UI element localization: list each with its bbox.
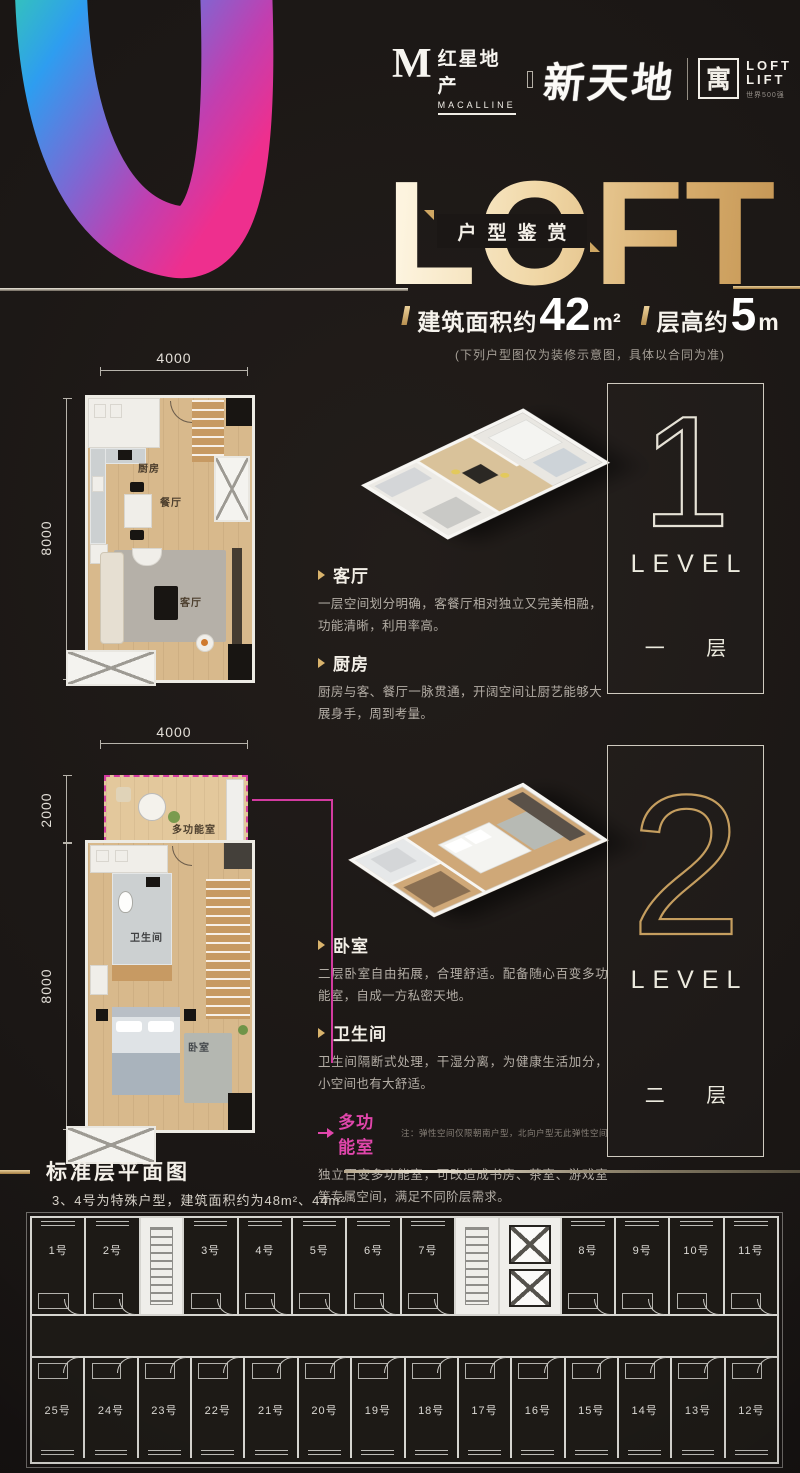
unit-label: 19号: [352, 1402, 403, 1418]
window-mark: [625, 1221, 659, 1226]
pillow: [116, 1021, 142, 1032]
section-kitchen: 厨房 厨房与客、餐厅一脉贯通，开阔空间让厨艺能够大展身手，周到考量。: [318, 650, 602, 725]
window-mark: [571, 1221, 605, 1226]
unit-cell: 18号: [404, 1358, 457, 1458]
nightstand: [96, 1009, 108, 1021]
room-label: 卫生间: [130, 929, 163, 944]
sink: [92, 476, 104, 492]
section-multiroom: 多功能室 注：弹性空间仅限朝南户型，北向户型无此弹性空间 独立百变多功能室，可改…: [318, 1108, 608, 1208]
kitchen-counter: [90, 448, 106, 544]
toilet: [118, 891, 133, 913]
door-arc: [757, 1299, 773, 1315]
level2-number-graphic: 2: [631, 766, 741, 966]
unit-cell: 15号: [564, 1358, 617, 1458]
door-arc: [63, 1357, 79, 1373]
door-arc: [648, 1299, 664, 1315]
unit-cell: 9号: [614, 1218, 668, 1314]
unit-label: 20号: [299, 1402, 350, 1418]
coffee-table: [154, 586, 178, 620]
unit-label: 13号: [672, 1402, 723, 1418]
level2-badge: 2 LEVEL 二 层: [607, 745, 764, 1157]
floor-word: 二 层: [627, 1079, 745, 1108]
level1-copy: 客厅 一层空间划分明确，客餐厅相对独立又完美相融，功能清晰，利用率高。 厨房 厨…: [318, 562, 602, 738]
area-label: 建筑面积约: [417, 303, 537, 337]
unit-label: 6号: [347, 1242, 399, 1258]
door-arc: [703, 1299, 719, 1315]
height-value: 5: [731, 294, 757, 335]
unit-cell: 3号: [182, 1218, 236, 1314]
window-mark: [308, 1450, 341, 1455]
window-mark: [248, 1221, 282, 1226]
plan1-dim-left-label: 8000: [38, 516, 54, 560]
unit-label: 23号: [139, 1402, 190, 1418]
window-mark: [361, 1450, 394, 1455]
closet-hatch: [214, 456, 250, 522]
room-label: 客厅: [180, 594, 202, 609]
door-arc: [117, 1357, 133, 1373]
window-mark: [96, 1221, 130, 1226]
brand-swoosh-graphic: [0, 0, 280, 300]
plan2-dim-top-line: [100, 743, 248, 744]
unit-cell: 5号: [291, 1218, 345, 1314]
blanket: [112, 1053, 180, 1095]
window-mark: [680, 1221, 714, 1226]
door-arc: [384, 1357, 400, 1373]
poster-canvas: M 红星地产 MACALLINE 新天地 寓 LOFT LIFT 世界500强 …: [0, 0, 800, 1473]
door-arc: [172, 846, 192, 866]
standard-floor-plan: 1号 2号 3号 4号: [30, 1216, 779, 1464]
window-mark: [357, 1221, 391, 1226]
section-marker-icon: [318, 1028, 325, 1038]
armchair: [116, 787, 131, 802]
unit-cell: 19号: [350, 1358, 403, 1458]
door-arc: [650, 1357, 666, 1373]
elevator-icon: [509, 1225, 551, 1264]
level1-number-graphic: 1: [646, 400, 726, 550]
door-arc: [330, 1357, 346, 1373]
unit-label: 22号: [192, 1402, 243, 1418]
unit-cell: 20号: [297, 1358, 350, 1458]
unit-label: 9号: [616, 1242, 668, 1258]
multiroom-zone: 多功能室: [104, 775, 248, 843]
core-elev: [498, 1218, 560, 1314]
washer: [115, 850, 128, 862]
unit-label: 2号: [86, 1242, 138, 1258]
plan2-dim-2000-label: 2000: [38, 788, 54, 832]
sink: [96, 850, 109, 862]
unit-label: 21号: [245, 1402, 296, 1418]
dining-chair: [130, 530, 144, 540]
seal-icon: [527, 71, 533, 88]
entry-door-arc: [170, 401, 192, 423]
cabinet: [226, 779, 244, 841]
unit-label: 11号: [725, 1242, 777, 1258]
floor-word: 一 层: [627, 632, 745, 661]
window-mark: [411, 1221, 445, 1226]
boyu-tagline: 世界500强: [746, 92, 792, 100]
height-unit: m: [758, 309, 778, 336]
section-bathroom: 卫生间 卫生间隔断式处理，干湿分离，为健康生活加分，小空间也有大舒适。: [318, 1020, 608, 1095]
door-arc: [437, 1357, 453, 1373]
door-arc: [170, 1357, 186, 1373]
section-living: 客厅 一层空间划分明确，客餐厅相对独立又完美相融，功能清晰，利用率高。: [318, 562, 602, 637]
macalline-text: 红星地产 MACALLINE: [438, 44, 516, 115]
render-3d-level1: [358, 382, 606, 562]
appliance-block: [94, 404, 106, 418]
door-arc: [223, 1357, 239, 1373]
unit-cell: 14号: [617, 1358, 670, 1458]
window-mark: [468, 1450, 501, 1455]
window-mark: [521, 1450, 554, 1455]
plan1-bottom-balcony: [66, 650, 156, 686]
door-arc: [704, 1357, 720, 1373]
room-label: 厨房: [138, 460, 160, 475]
door-arc: [217, 1299, 233, 1315]
iso-floor-level2: [348, 783, 608, 918]
window-mark: [201, 1450, 234, 1455]
door-arc: [597, 1357, 613, 1373]
window-mark: [415, 1450, 448, 1455]
unit-label: 24号: [85, 1402, 136, 1418]
room-label: 餐厅: [160, 494, 182, 509]
unit-cell: 21号: [243, 1358, 296, 1458]
unit-label: 5号: [293, 1242, 345, 1258]
sofa: [100, 552, 124, 644]
door-arc: [277, 1357, 293, 1373]
pillow: [148, 1021, 174, 1032]
unit-label: 17号: [459, 1402, 510, 1418]
gold-tick-icon: [641, 306, 650, 325]
hero-band: 户型鉴赏: [437, 214, 587, 248]
door-arc: [594, 1299, 610, 1315]
door-arc: [64, 1299, 80, 1315]
title-tick-left: [0, 1170, 30, 1174]
unit-cell: 12号: [724, 1358, 777, 1458]
xintiandi-script-logo: 新天地: [541, 49, 679, 109]
window-mark: [194, 1221, 228, 1226]
boyu-loft-logo: 寓 LOFT LIFT 世界500强: [698, 58, 792, 100]
shaft-block: [226, 398, 252, 426]
door-arc: [757, 1357, 773, 1373]
section-marker-icon: [318, 570, 325, 580]
door-arc: [325, 1299, 341, 1315]
unit-label: 7号: [402, 1242, 454, 1258]
door-arc: [490, 1357, 506, 1373]
area-value: 42: [539, 294, 590, 335]
bathroom: [112, 873, 172, 965]
cabinet: [90, 965, 108, 995]
unit-label: 14号: [619, 1402, 670, 1418]
level1-badge: 1 LEVEL 一 层: [607, 383, 764, 694]
unit-label: 15号: [566, 1402, 617, 1418]
stairs: [192, 400, 224, 462]
room-label: 卧室: [188, 1039, 210, 1054]
plan1-dim-top-label: 4000: [100, 350, 248, 366]
door-arc: [380, 1299, 396, 1315]
unit-cell: 13号: [670, 1358, 723, 1458]
window-mark: [735, 1450, 768, 1455]
window-mark: [148, 1450, 181, 1455]
unit-label: 10号: [670, 1242, 722, 1258]
hero-specs: 建筑面积约 42 m² 层高约 5 m: [388, 294, 792, 337]
door-arc: [434, 1299, 450, 1315]
door-arc: [544, 1357, 560, 1373]
unit-cell: 10号: [668, 1218, 722, 1314]
window-mark: [575, 1450, 608, 1455]
shaft-block: [224, 843, 252, 869]
unit-cell: 1号: [32, 1218, 84, 1314]
dining-table: [124, 494, 152, 528]
area-unit: m²: [593, 309, 621, 336]
floor-plan-level1: 厨房 餐厅 客厅: [88, 398, 252, 680]
unit-label: 1号: [32, 1242, 84, 1258]
window-mark: [41, 1450, 74, 1455]
window-mark: [41, 1221, 75, 1226]
unit-cell: 7号: [400, 1218, 454, 1314]
core-stair: [139, 1218, 183, 1314]
plan2-dim-8000-line: [66, 843, 67, 1130]
cooktop: [118, 450, 132, 460]
divider-line-left: [0, 288, 408, 291]
section-bedroom: 卧室 二层卧室自由拓展，合理舒适。配备随心百变多功能室，自成一方私密天地。: [318, 932, 608, 1007]
standard-floor-title: 标准层平面图: [46, 1156, 190, 1186]
connector-line: [252, 799, 333, 801]
section-marker-icon: [318, 940, 325, 950]
plant: [238, 1025, 248, 1035]
vanity-dresser: [112, 965, 172, 981]
unit-cell: 25号: [32, 1358, 83, 1458]
appliance-block: [110, 404, 122, 418]
window-mark: [255, 1450, 288, 1455]
section-marker-icon: [318, 658, 325, 668]
window-mark: [734, 1221, 768, 1226]
shaft-block: [228, 1093, 252, 1130]
tv-wall: [232, 548, 242, 644]
plan1-dim-left-line: [66, 398, 67, 680]
height-label: 层高约: [657, 303, 729, 337]
boyu-wordmark: LOFT LIFT 世界500强: [746, 58, 792, 100]
window-mark: [682, 1450, 715, 1455]
units-row-bottom: 25号 24号 23号 22号: [32, 1356, 777, 1458]
units-row-top: 1号 2号 3号 4号: [32, 1218, 777, 1316]
headboard: [112, 1007, 180, 1017]
plan2-dim-top-label: 4000: [100, 724, 248, 740]
hero-disclaimer: (下列户型图仅为装修示意图，具体以合同为准): [388, 346, 792, 363]
macalline-logo: M 红星地产 MACALLINE: [392, 44, 516, 115]
header-logos: M 红星地产 MACALLINE 新天地 寓 LOFT LIFT 世界500强: [392, 48, 792, 110]
window-mark: [628, 1450, 661, 1455]
macalline-m-mark: M: [392, 44, 432, 84]
multiroom-note: 注：弹性空间仅限朝南户型，北向户型无此弹性空间: [401, 1127, 608, 1139]
title-rule: [344, 1170, 800, 1173]
floor-plan-level2: 多功能室 卫生间 卧室: [88, 775, 252, 1130]
render-3d-level2: [336, 750, 614, 940]
arrow-right-icon: [318, 1132, 328, 1134]
level2-copy: 卧室 二层卧室自由拓展，合理舒适。配备随心百变多功能室，自成一方私密天地。 卫生…: [318, 932, 608, 1221]
door-arc: [119, 1299, 135, 1315]
svg-text:1: 1: [646, 400, 726, 550]
standard-floor-note: 3、4号为特殊户型，建筑面积约为48m²、44m²: [52, 1190, 346, 1209]
unit-cell: 24号: [83, 1358, 136, 1458]
unit-label: 16号: [512, 1402, 563, 1418]
stairs: [206, 879, 250, 1019]
bath-shelf: [146, 877, 160, 887]
unit-cell: 17号: [457, 1358, 510, 1458]
unit-cell: 6号: [345, 1218, 399, 1314]
unit-cell: 4号: [237, 1218, 291, 1314]
connector-line: [331, 799, 333, 1063]
plan2-dim-2000-line: [66, 775, 67, 843]
boyu-seal-icon: 寓: [698, 58, 739, 99]
unit-label: 4号: [239, 1242, 291, 1258]
plan2-dim-8000-label: 8000: [38, 964, 54, 1008]
level-word: LEVEL: [623, 550, 749, 579]
unit-cell: 11号: [723, 1218, 777, 1314]
unit-label: 25号: [32, 1402, 83, 1418]
corridor: [32, 1316, 777, 1356]
stairs-icon: [150, 1227, 174, 1305]
unit-cell: 22号: [190, 1358, 243, 1458]
shaft-block: [228, 644, 252, 680]
decor-plant: [201, 639, 208, 646]
core-stair: [454, 1218, 498, 1314]
window-mark: [303, 1221, 337, 1226]
unit-label: 18号: [406, 1402, 457, 1418]
level-word: LEVEL: [623, 966, 749, 995]
iso-floor-level1: [361, 408, 610, 539]
unit-label: 12号: [726, 1402, 777, 1418]
stairs-icon: [465, 1227, 489, 1305]
svg-text:2: 2: [631, 766, 741, 966]
gold-tick-icon: [401, 306, 410, 325]
window-mark: [95, 1450, 128, 1455]
unit-cell: 2号: [84, 1218, 138, 1314]
level2-main-plan: 卫生间 卧室: [88, 843, 252, 1130]
door-arc: [271, 1299, 287, 1315]
plan1-dim-top-line: [100, 370, 248, 371]
unit-label: 3号: [184, 1242, 236, 1258]
unit-cell: 16号: [510, 1358, 563, 1458]
dining-chair: [130, 482, 144, 492]
round-table: [138, 793, 166, 821]
nightstand: [184, 1009, 196, 1021]
elevator-icon: [509, 1269, 551, 1308]
unit-cell: 23号: [137, 1358, 190, 1458]
room-label: 多功能室: [172, 821, 216, 836]
unit-cell: 8号: [560, 1218, 614, 1314]
unit-label: 8号: [562, 1242, 614, 1258]
